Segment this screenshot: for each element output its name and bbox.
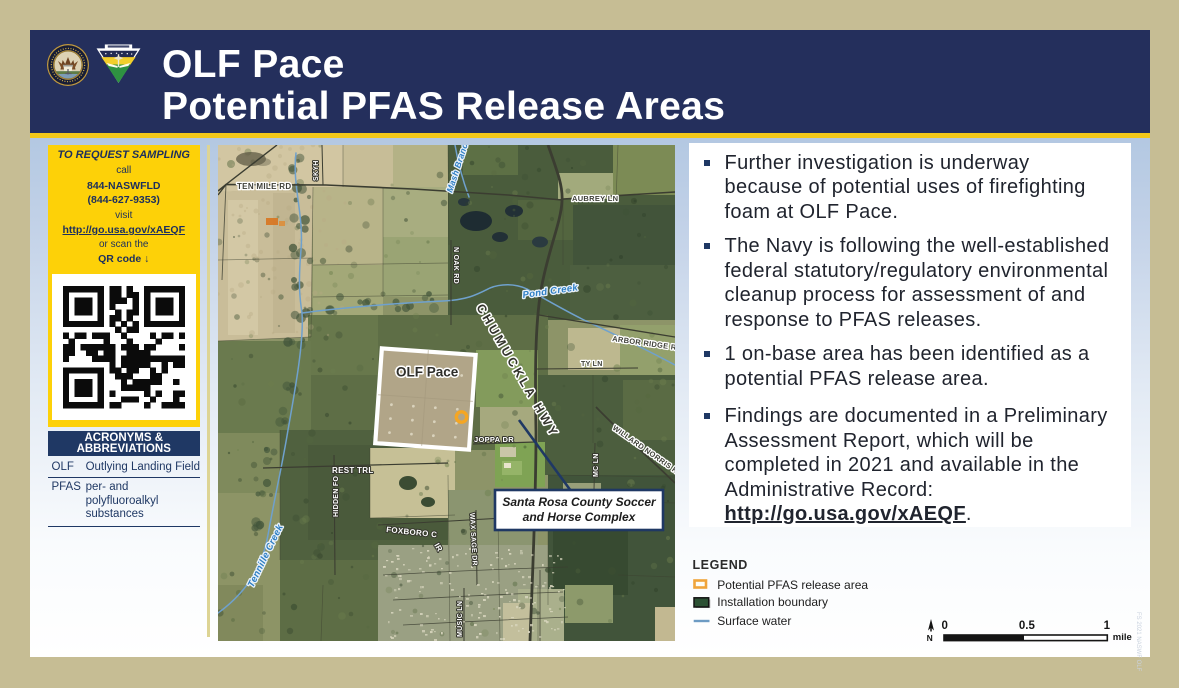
svg-text:and Horse Complex: and Horse Complex <box>523 510 637 524</box>
svg-text:N OAK RD: N OAK RD <box>452 247 459 284</box>
svg-text:AUBREY LN: AUBREY LN <box>572 194 618 203</box>
svg-text:MUSIC LN: MUSIC LN <box>457 601 464 637</box>
svg-text:TY LN: TY LN <box>581 361 603 368</box>
svg-text:OLF Pace: OLF Pace <box>396 365 459 380</box>
svg-text:REST TRL: REST TRL <box>332 466 374 475</box>
svg-text:HIDDEN FO: HIDDEN FO <box>333 476 340 517</box>
svg-text:SKYH: SKYH <box>313 160 320 181</box>
svg-text:N: N <box>927 633 933 643</box>
svg-text:JOPPA DR: JOPPA DR <box>474 435 514 444</box>
svg-text:TEN MILE RD: TEN MILE RD <box>237 182 291 191</box>
svg-text:MC LN: MC LN <box>593 453 600 477</box>
svg-text:Santa Rosa County Soccer: Santa Rosa County Soccer <box>502 495 657 509</box>
